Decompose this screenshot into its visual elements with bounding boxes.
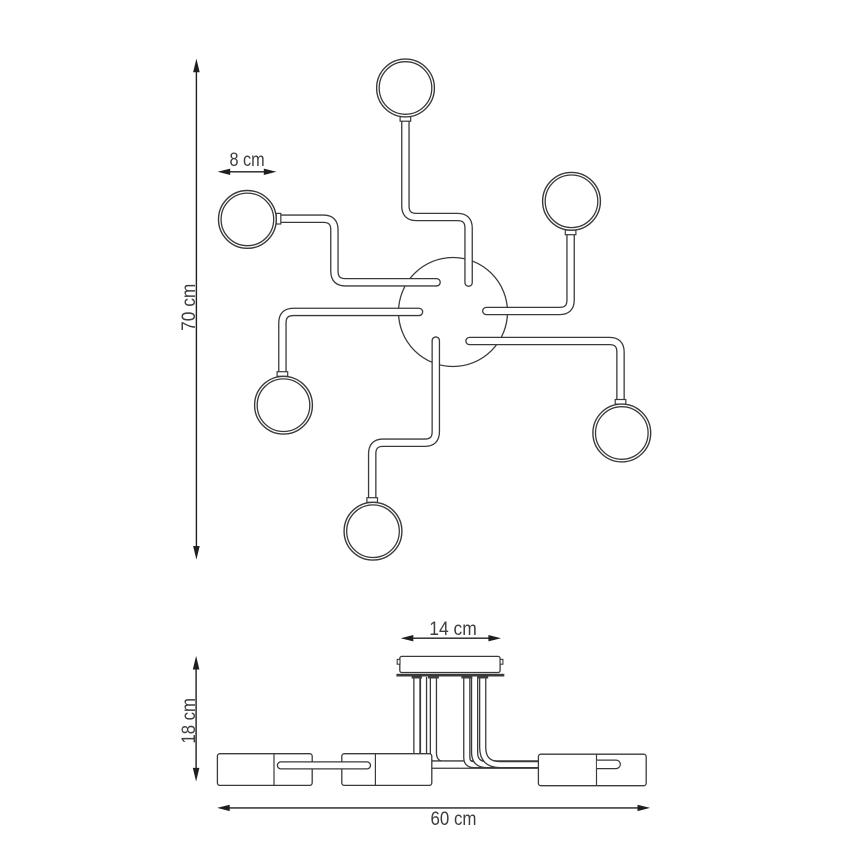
svg-text:70 cm: 70 cm: [179, 284, 200, 331]
svg-text:14 cm: 14 cm: [429, 619, 477, 640]
svg-text:18 cm: 18 cm: [179, 698, 200, 744]
svg-text:8 cm: 8 cm: [230, 150, 265, 171]
svg-text:60 cm: 60 cm: [431, 809, 477, 830]
